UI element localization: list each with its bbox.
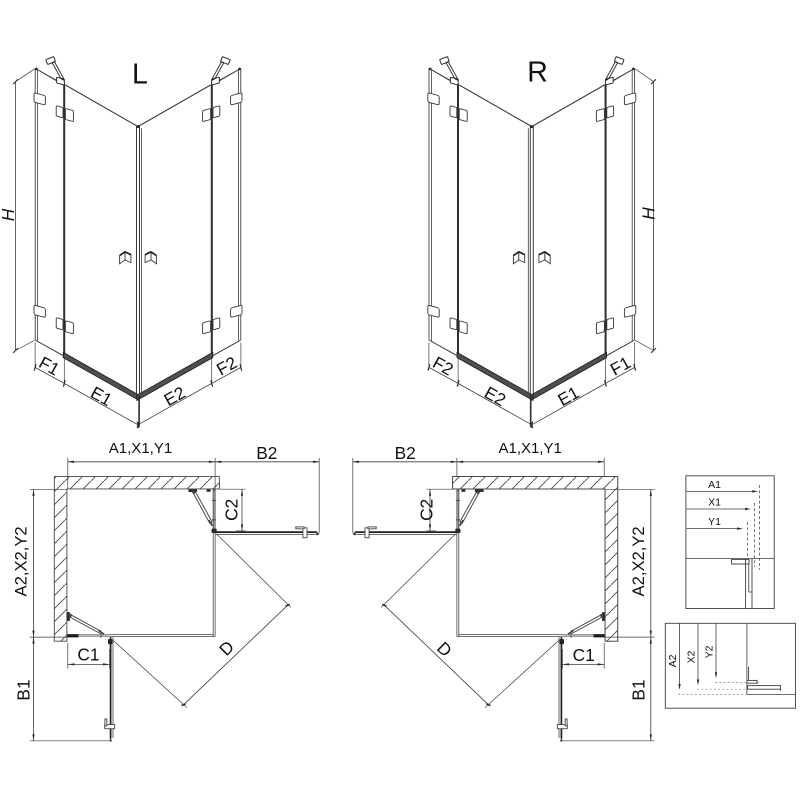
svg-text:A1: A1 [708, 479, 721, 491]
svg-text:R: R [527, 57, 548, 89]
svg-text:B2: B2 [395, 443, 416, 463]
svg-text:C1: C1 [77, 645, 99, 665]
svg-text:Y1: Y1 [708, 516, 721, 528]
svg-text:Y2: Y2 [703, 645, 715, 658]
svg-text:X2: X2 [685, 650, 697, 663]
svg-text:X1: X1 [708, 497, 721, 509]
svg-text:B2: B2 [256, 443, 277, 463]
svg-text:A1,X1,Y1: A1,X1,Y1 [499, 440, 562, 457]
svg-text:A1,X1,Y1: A1,X1,Y1 [109, 440, 172, 457]
svg-text:A2,X2,Y2: A2,X2,Y2 [12, 526, 31, 596]
svg-text:B1: B1 [14, 679, 34, 700]
svg-text:H: H [639, 207, 659, 220]
svg-text:B1: B1 [629, 679, 649, 700]
svg-text:H: H [0, 208, 18, 221]
svg-text:C2: C2 [221, 499, 241, 521]
svg-text:L: L [132, 58, 148, 90]
svg-text:C1: C1 [573, 645, 595, 665]
svg-text:C2: C2 [416, 499, 436, 521]
svg-text:A2,X2,Y2: A2,X2,Y2 [629, 526, 648, 596]
svg-text:A2: A2 [667, 654, 679, 667]
